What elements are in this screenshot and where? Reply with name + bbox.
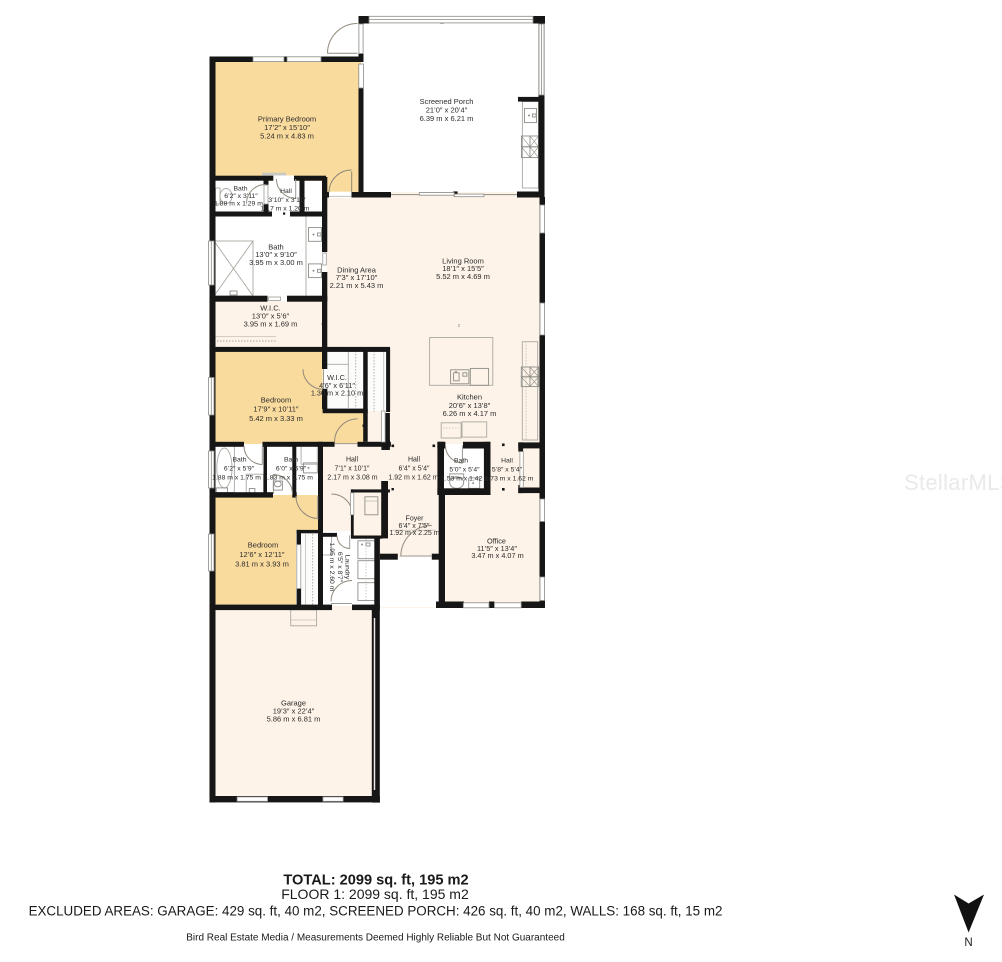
svg-text:6’4″ x 7’5″: 6’4″ x 7’5″: [398, 523, 430, 530]
svg-text:5.42 m x 3.33 m: 5.42 m x 3.33 m: [249, 414, 303, 423]
svg-text:6’4″ x 5’4″: 6’4″ x 5’4″: [398, 466, 430, 473]
svg-text:Bath: Bath: [234, 186, 248, 193]
svg-text:Bedroom: Bedroom: [248, 541, 278, 550]
svg-text:1.95 m x 2.60 m: 1.95 m x 2.60 m: [328, 543, 335, 592]
svg-text:5’0″ x 5’4″: 5’0″ x 5’4″: [449, 467, 480, 474]
svg-text:StellarMLS: StellarMLS: [904, 470, 1002, 495]
svg-text:3’10″ x 3’11″: 3’10″ x 3’11″: [268, 197, 306, 204]
svg-text:Bird Real Estate Media / Measu: Bird Real Estate Media / Measurements De…: [186, 933, 565, 944]
svg-text:N: N: [964, 937, 972, 949]
svg-text:1.17 m x 1.20 m: 1.17 m x 1.20 m: [261, 206, 310, 213]
svg-text:5.86 m x 6.81 m: 5.86 m x 6.81 m: [267, 715, 321, 724]
svg-text:1.30 m x 2.10 m: 1.30 m x 2.10 m: [311, 389, 363, 398]
svg-text:5.24 m x 4.83 m: 5.24 m x 4.83 m: [260, 132, 314, 141]
svg-text:6.39 m x 6.21 m: 6.39 m x 6.21 m: [420, 114, 474, 123]
svg-text:1.73 m x 1.62 m: 1.73 m x 1.62 m: [485, 476, 534, 483]
svg-text:3.95 m x 3.00 m: 3.95 m x 3.00 m: [249, 258, 303, 267]
svg-text:12’6″ x 12’11″: 12’6″ x 12’11″: [239, 550, 285, 559]
svg-text:Bath: Bath: [454, 458, 468, 465]
svg-text:1.92 m x 1.62 m: 1.92 m x 1.62 m: [388, 475, 438, 482]
svg-text:3.95 m x 1.69 m: 3.95 m x 1.69 m: [244, 320, 298, 329]
svg-text:Hall: Hall: [346, 457, 359, 464]
svg-text:Bath: Bath: [284, 457, 298, 464]
svg-text:1.92 m x 2.25 m: 1.92 m x 2.25 m: [389, 530, 439, 537]
svg-text:3.81 m x 3.93 m: 3.81 m x 3.93 m: [235, 560, 289, 569]
svg-text:5.52 m x 4.69 m: 5.52 m x 4.69 m: [436, 272, 490, 281]
svg-text:1.83 m x 1.75 m: 1.83 m x 1.75 m: [264, 475, 313, 482]
svg-text:2.21 m x 5.43 m: 2.21 m x 5.43 m: [330, 281, 384, 290]
svg-text:5’8″ x 5’4″: 5’8″ x 5’4″: [492, 467, 523, 474]
svg-text:6.26 m x 4.17 m: 6.26 m x 4.17 m: [443, 409, 497, 418]
svg-text:Hall: Hall: [280, 188, 292, 195]
svg-text:6’0″ x 5’9″: 6’0″ x 5’9″: [276, 466, 307, 473]
svg-text:6’2″ x 5’9″: 6’2″ x 5’9″: [224, 466, 255, 473]
svg-text:Foyer: Foyer: [406, 516, 425, 523]
svg-text:Bedroom: Bedroom: [261, 396, 291, 405]
svg-text:EXCLUDED AREAS: GARAGE: 429 sq: EXCLUDED AREAS: GARAGE: 429 sq. ft, 40 m…: [29, 904, 723, 919]
svg-text:6’2″ x 3’11″: 6’2″ x 3’11″: [224, 193, 258, 200]
svg-text:1.88 m x 1.75 m: 1.88 m x 1.75 m: [212, 475, 261, 482]
svg-text:17’9″ x 10’11″: 17’9″ x 10’11″: [253, 405, 299, 414]
svg-text:2.17 m x 3.08 m: 2.17 m x 3.08 m: [327, 475, 377, 482]
svg-text:3.47 m x 4.07 m: 3.47 m x 4.07 m: [471, 551, 523, 560]
svg-text:Laundry: Laundry: [344, 555, 351, 580]
svg-text:Hall: Hall: [408, 457, 421, 464]
svg-text:Hall: Hall: [501, 458, 513, 465]
svg-text:1.53 m x 1.42 m: 1.53 m x 1.42 m: [441, 476, 490, 483]
svg-text:FLOOR 1: 2099 sq. ft, 195 m2: FLOOR 1: 2099 sq. ft, 195 m2: [281, 886, 469, 902]
svg-text:1.88 m x 1.29 m: 1.88 m x 1.29 m: [214, 201, 263, 208]
svg-text:7’1″ x 10’1″: 7’1″ x 10’1″: [335, 466, 370, 473]
svg-text:6’5″ x 8’7″: 6’5″ x 8’7″: [336, 552, 343, 583]
svg-text:Bath: Bath: [233, 457, 247, 464]
